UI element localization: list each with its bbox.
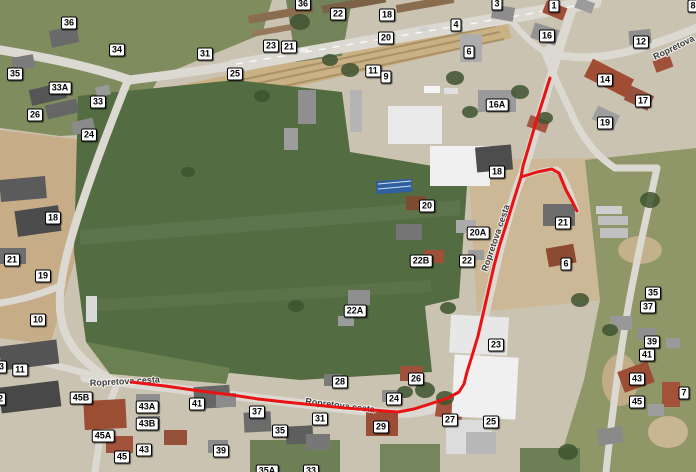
house-number-badge-45: 45: [629, 396, 645, 409]
house-number-badge-22b: 22B: [410, 255, 433, 268]
house-number-badge-21: 21: [4, 254, 20, 267]
house-number-badge-12: 12: [633, 36, 649, 49]
house-number-badge-14: 14: [597, 74, 613, 87]
house-number-badge-43: 43: [629, 373, 645, 386]
house-number-badge-35: 35: [272, 425, 288, 438]
house-number-badge-10: 10: [30, 314, 46, 327]
house-number-badge-4: 4: [450, 19, 461, 32]
house-number-badge-39: 39: [644, 336, 660, 349]
house-number-badge-41: 41: [189, 398, 205, 411]
house-number-badge-33: 33: [90, 96, 106, 109]
house-number-badge-45b: 45B: [70, 392, 93, 405]
house-number-badge-23: 23: [263, 40, 279, 53]
aerial-map-canvas[interactable]: Ropretova cestaRopretova cestaRopretova …: [0, 0, 696, 472]
house-number-badge-7: 7: [678, 387, 689, 400]
house-number-badge-18: 18: [45, 212, 61, 225]
house-number-badge-22: 22: [330, 8, 346, 21]
house-number-badge-9: 9: [380, 71, 391, 84]
house-number-badge-36: 36: [61, 17, 77, 30]
house-number-badge-39: 39: [213, 445, 229, 458]
house-number-badge-24: 24: [81, 129, 97, 142]
house-number-badge-24: 24: [386, 393, 402, 406]
house-number-badge-28: 28: [332, 376, 348, 389]
house-number-badge-8: 8: [687, 0, 696, 13]
aerial-photo-layer: Ropretova cestaRopretova cestaRopretova …: [0, 0, 696, 472]
house-number-badge-22: 22: [459, 255, 475, 268]
house-number-badge-43b: 43B: [136, 418, 159, 431]
house-number-badge-35a: 35A: [256, 465, 279, 472]
house-number-badge-31: 31: [197, 48, 213, 61]
house-number-badge-25: 25: [227, 68, 243, 81]
house-number-badge-13: 13: [0, 361, 7, 374]
house-number-badge-21: 21: [555, 217, 571, 230]
house-number-badge-23: 23: [488, 339, 504, 352]
house-number-badge-25: 25: [483, 416, 499, 429]
house-number-badge-19: 19: [35, 270, 51, 283]
house-number-badge-26: 26: [27, 109, 43, 122]
house-number-badge-6: 6: [463, 46, 474, 59]
house-number-badge-35: 35: [645, 287, 661, 300]
house-number-badge-17: 17: [635, 95, 651, 108]
house-number-badge-36: 36: [295, 0, 311, 11]
house-number-badge-12: 12: [0, 393, 6, 406]
house-number-badge-20: 20: [378, 32, 394, 45]
house-number-badge-19: 19: [597, 117, 613, 130]
house-number-badge-3: 3: [491, 0, 502, 11]
house-number-badge-43a: 43A: [136, 401, 159, 414]
house-number-badge-11: 11: [365, 65, 381, 78]
house-number-badge-45: 45: [114, 451, 130, 464]
house-number-badge-20: 20: [419, 200, 435, 213]
house-number-badge-1: 1: [548, 0, 559, 13]
house-number-badge-37: 37: [249, 406, 265, 419]
house-number-badge-27: 27: [442, 414, 458, 427]
house-number-badge-33: 33: [303, 465, 319, 472]
house-number-badge-37: 37: [640, 301, 656, 314]
house-number-badge-18: 18: [489, 166, 505, 179]
house-number-badge-35: 35: [7, 68, 23, 81]
house-number-badge-31: 31: [312, 413, 328, 426]
house-number-badge-18: 18: [379, 9, 395, 22]
house-number-badge-22a: 22A: [344, 305, 367, 318]
house-number-badge-43: 43: [136, 444, 152, 457]
house-number-badge-6: 6: [560, 258, 571, 271]
house-number-badge-16a: 16A: [486, 99, 509, 112]
house-number-badge-11: 11: [12, 364, 28, 377]
house-number-badge-16: 16: [539, 30, 555, 43]
house-number-badge-45a: 45A: [92, 430, 115, 443]
house-number-badge-26: 26: [408, 373, 424, 386]
house-number-badge-20a: 20A: [467, 227, 490, 240]
house-number-badge-41: 41: [639, 349, 655, 362]
house-number-badge-29: 29: [373, 421, 389, 434]
house-number-badge-34: 34: [109, 44, 125, 57]
house-number-badge-33a: 33A: [49, 82, 72, 95]
house-number-badge-21: 21: [281, 41, 297, 54]
